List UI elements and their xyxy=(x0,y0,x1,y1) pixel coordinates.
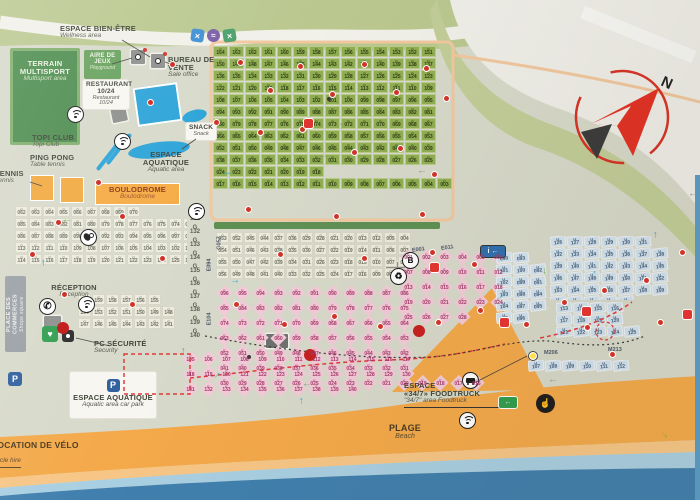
water-point-marker xyxy=(214,120,219,125)
sales-office-building xyxy=(151,54,165,68)
pitch-G147: G147 xyxy=(78,318,91,329)
pitch-G033: G033 xyxy=(286,268,299,279)
pitch-P026: P026 xyxy=(405,154,420,165)
pitch-P155: P155 xyxy=(357,46,372,57)
wellness-label: ESPACE BIEN-ÊTREWellness area xyxy=(60,25,136,40)
pin-icon xyxy=(135,54,141,60)
water-point-marker xyxy=(472,262,477,267)
pitch-P006: P006 xyxy=(389,178,404,189)
wifi-icon xyxy=(114,133,131,150)
pitch-G068: G068 xyxy=(99,206,112,217)
pitch-G121: G121 xyxy=(113,254,126,265)
water-point-marker xyxy=(398,146,403,151)
pitch-P140: P140 xyxy=(373,58,388,69)
pitch-E090: E090 xyxy=(324,286,341,300)
pitch-P144: P144 xyxy=(309,58,324,69)
pitch-M147: M147 xyxy=(566,271,583,284)
pitch-E014: E014 xyxy=(418,280,435,294)
pitch-E015: E015 xyxy=(436,280,453,294)
pitch-G074: G074 xyxy=(169,218,182,229)
hydrant-marker xyxy=(413,325,425,337)
pitch-P003: P003 xyxy=(437,178,452,189)
pitch-P113: P113 xyxy=(357,82,372,93)
pitch-G149: G149 xyxy=(148,306,161,317)
pitch-P105: P105 xyxy=(261,94,276,105)
pitch-P083: P083 xyxy=(389,106,404,117)
pitch-P028: P028 xyxy=(373,154,388,165)
pitch-G077: G077 xyxy=(127,218,140,229)
pitch-P163: P163 xyxy=(229,46,244,57)
pitch-G140: G140 xyxy=(184,329,206,341)
phone-icon: ✆ xyxy=(39,298,56,315)
pitch-G045: G045 xyxy=(244,232,257,243)
pitch-E106: E106 xyxy=(200,352,217,366)
water-point-marker xyxy=(602,288,607,293)
pitch-E068: E068 xyxy=(324,316,341,330)
pitch-G010: G010 xyxy=(370,256,383,267)
pitch-P124: P124 xyxy=(405,70,420,81)
pitch-G009: G009 xyxy=(370,268,383,279)
pitch-P079: P079 xyxy=(229,118,244,129)
pitch-P053: P053 xyxy=(421,130,436,141)
pitch-M107: M107 xyxy=(528,360,545,372)
pitch-P127: P127 xyxy=(357,70,372,81)
pitch-P138: P138 xyxy=(405,58,420,69)
pitch-M144: M144 xyxy=(634,259,651,272)
water-point-marker xyxy=(362,256,367,261)
pitch-G084: G084 xyxy=(29,218,42,229)
pitch-P049: P049 xyxy=(261,142,276,153)
wifi-icon xyxy=(67,106,84,123)
pitch-E091: E091 xyxy=(306,286,323,300)
pitch-E085: E085 xyxy=(216,301,233,315)
topi-club-label: TOPI CLUBTopi Club xyxy=(32,134,74,149)
pitch-P089: P089 xyxy=(293,106,308,117)
pitch-P160: P160 xyxy=(277,46,292,57)
water-point-marker xyxy=(644,278,649,283)
pitch-P094: P094 xyxy=(213,106,228,117)
pitch-E060: E060 xyxy=(270,331,287,345)
pitch-P020: P020 xyxy=(277,166,292,177)
pitch-P114: P114 xyxy=(341,82,356,93)
pitch-M152: M152 xyxy=(651,271,668,284)
pitch-E021: E021 xyxy=(436,295,453,309)
pitch-G041: G041 xyxy=(258,268,271,279)
pitch-G144: G144 xyxy=(120,318,133,329)
water-point-marker xyxy=(478,308,483,313)
water-point-marker xyxy=(30,252,35,257)
pitch-E079: E079 xyxy=(324,301,341,315)
pitch-P116: P116 xyxy=(309,82,324,93)
pitch-G105: G105 xyxy=(127,242,140,253)
pitch-P009: P009 xyxy=(341,178,356,189)
pitch-P037: P037 xyxy=(229,154,244,165)
pitch-M133: M133 xyxy=(566,247,583,260)
pitch-G055: G055 xyxy=(216,256,229,267)
pitch-M140: M140 xyxy=(566,259,583,272)
pitch-G120: G120 xyxy=(99,254,112,265)
pitch-G106: G106 xyxy=(113,242,126,253)
pitch-G066: G066 xyxy=(71,206,84,217)
pitch-G067: G067 xyxy=(85,206,98,217)
pitch-E026: E026 xyxy=(418,310,435,324)
pitch-M151: M151 xyxy=(634,271,651,284)
pitch-M112: M112 xyxy=(612,360,629,372)
pitch-M134: M134 xyxy=(583,247,600,260)
pitch-G114: G114 xyxy=(15,254,28,265)
boulodrome-label: BOULODROME Boulodrome xyxy=(95,186,180,201)
pitch-P120: P120 xyxy=(245,82,260,93)
pitch-G026: G026 xyxy=(314,256,327,267)
pitch-M137: M137 xyxy=(634,247,651,260)
tennis-court xyxy=(60,177,84,203)
pitch-E003: E003 xyxy=(436,250,453,264)
pitch-P034: P034 xyxy=(277,154,292,165)
pitch-G132: G132 xyxy=(184,225,206,237)
pitch-G092: G092 xyxy=(99,230,112,241)
post-marker xyxy=(327,97,331,101)
pitch-P014: P014 xyxy=(261,178,276,189)
pitch-M164: M164 xyxy=(617,295,634,300)
pitch-G017: G017 xyxy=(342,268,355,279)
water-point-marker xyxy=(148,100,153,105)
pitch-P068: P068 xyxy=(405,118,420,129)
pitch-P139: P139 xyxy=(389,58,404,69)
pitch-G085: G085 xyxy=(15,218,28,229)
pitch-P123: P123 xyxy=(421,70,436,81)
pitch-P063: P063 xyxy=(261,130,276,141)
parking-icon: P xyxy=(107,379,120,392)
aquatic-carpark-label: P ESPACE AQUATIQUE Aquatic area car park xyxy=(70,372,156,418)
pitch-P130: P130 xyxy=(309,70,324,81)
pitch-G145: G145 xyxy=(106,318,119,329)
utility-marker xyxy=(304,119,313,128)
pitch-E063: E063 xyxy=(216,331,233,345)
water-point-marker xyxy=(62,292,67,297)
water-point-marker xyxy=(120,214,125,219)
pitch-P085: P085 xyxy=(357,106,372,117)
water-point-marker xyxy=(334,214,339,219)
pitch-E066: E066 xyxy=(360,316,377,330)
pitch-M117: M117 xyxy=(556,313,573,326)
pitch-P051: P051 xyxy=(229,142,244,153)
pitch-P033: P033 xyxy=(293,154,308,165)
pitch-M155: M155 xyxy=(583,283,600,296)
exit-sign-icon: ← xyxy=(498,396,518,409)
pitch-M091: M091 xyxy=(529,275,546,288)
water-point-marker xyxy=(96,180,101,185)
pitch-zone-g-left: G062G063G064G065G066G067G068G069G070G085… xyxy=(15,206,187,286)
pitch-G040: G040 xyxy=(272,268,285,279)
pitch-E089: E089 xyxy=(342,286,359,300)
pitch-G095: G095 xyxy=(141,230,154,241)
sport-badge-icon: × xyxy=(222,28,237,43)
pitch-G093: G093 xyxy=(113,230,126,241)
pitch-G134: G134 xyxy=(184,251,206,263)
pitch-P060: P060 xyxy=(309,130,324,141)
water-point-marker xyxy=(352,150,357,155)
pitch-P081: P081 xyxy=(421,106,436,117)
pitch-P126: P126 xyxy=(373,70,388,81)
pitch-E072: E072 xyxy=(252,316,269,330)
pitch-P057: P057 xyxy=(357,130,372,141)
pitch-P088: P088 xyxy=(309,106,324,117)
pitch-E074: E074 xyxy=(216,316,233,330)
pitch-G102: G102 xyxy=(169,242,182,253)
pitch-M159: M159 xyxy=(651,283,668,296)
direction-arrow-icon: → xyxy=(178,346,188,356)
water-point-marker xyxy=(130,302,135,307)
pitch-P131: P131 xyxy=(293,70,308,81)
playground-building xyxy=(131,50,145,64)
pitch-P008: P008 xyxy=(357,178,372,189)
tennis-label: TENNISTennis xyxy=(0,170,24,185)
pitch-P039: P039 xyxy=(421,142,436,153)
pitch-E093: E093 xyxy=(270,286,287,300)
pitch-G042: G042 xyxy=(258,256,271,267)
pitch-M132: M132 xyxy=(550,247,567,260)
pitch-P121: P121 xyxy=(229,82,244,93)
pitch-G064: G064 xyxy=(43,206,56,217)
pitch-G152: G152 xyxy=(106,306,119,317)
pitch-E057: E057 xyxy=(324,331,341,345)
pitch-M135: M135 xyxy=(600,247,617,260)
pitch-G117: G117 xyxy=(57,254,70,265)
spa-badge-icon: ≈ xyxy=(207,29,220,42)
pitch-P110: P110 xyxy=(405,82,420,93)
pool-main xyxy=(133,82,183,127)
pitch-G056: G056 xyxy=(216,268,229,279)
pitch-P070: P070 xyxy=(373,118,388,129)
sales-office-label: BUREAU DE VENTESale office xyxy=(168,56,222,79)
utility-marker xyxy=(500,318,509,327)
pitch-G029: G029 xyxy=(300,232,313,243)
pitch-P148: P148 xyxy=(245,58,260,69)
pitch-G032: G032 xyxy=(300,268,313,279)
pitch-M150: M150 xyxy=(617,271,634,284)
pitch-G133: G133 xyxy=(184,238,206,250)
pitch-P112: P112 xyxy=(373,82,388,93)
pitch-E067: E067 xyxy=(342,316,359,330)
pitch-M158: M158 xyxy=(634,283,651,296)
pitch-P099: P099 xyxy=(357,94,372,105)
pitch-E077: E077 xyxy=(360,301,377,315)
pitch-G013: G013 xyxy=(356,232,369,243)
pitch-G012: G012 xyxy=(370,232,383,243)
pitch-E056: E056 xyxy=(342,331,359,345)
pitch-P062: P062 xyxy=(277,130,292,141)
area-label-M213: M213 xyxy=(608,347,622,353)
water-point-marker xyxy=(258,130,263,135)
pitch-P122: P122 xyxy=(213,82,228,93)
pitch-zone-g-column: G131G132G133G134G135G136G137G138G139G140 xyxy=(184,212,210,352)
pitch-M153: M153 xyxy=(550,283,567,296)
pitch-P157: P157 xyxy=(325,46,340,57)
pitch-G022: G022 xyxy=(328,244,341,255)
pitch-P154: P154 xyxy=(373,46,388,57)
water-point-marker xyxy=(298,64,303,69)
pitch-P086: P086 xyxy=(341,106,356,117)
pitch-G146: G146 xyxy=(92,318,105,329)
pitch-E061: E061 xyxy=(252,331,269,345)
pitch-G075: G075 xyxy=(155,218,168,229)
pitch-E095: E095 xyxy=(234,286,251,300)
water-point-marker xyxy=(432,172,437,177)
wifi-icon xyxy=(459,412,476,429)
pitch-E094: E094 xyxy=(252,286,269,300)
pitch-G094: G094 xyxy=(127,230,140,241)
pitch-G150: G150 xyxy=(134,306,147,317)
pitch-G118: G118 xyxy=(71,254,84,265)
pitch-G027: G027 xyxy=(314,244,327,255)
water-point-marker xyxy=(424,66,429,71)
pitch-P015: P015 xyxy=(245,178,260,189)
pitch-P021: P021 xyxy=(261,166,276,177)
pitch-P161: P161 xyxy=(261,46,276,57)
pitch-G048: G048 xyxy=(244,268,257,279)
pitch-M125: M125 xyxy=(623,325,640,338)
pitch-M154: M154 xyxy=(566,283,583,296)
pitch-G014: G014 xyxy=(356,244,369,255)
pitch-G136: G136 xyxy=(184,277,206,289)
pitch-G088: G088 xyxy=(43,230,56,241)
pitch-G104: G104 xyxy=(141,242,154,253)
pitch-E096: E096 xyxy=(216,286,233,300)
pitch-P087: P087 xyxy=(325,106,340,117)
beach-label: PLAGE Beach xyxy=(360,424,450,441)
pitch-P018: P018 xyxy=(309,166,324,177)
pitch-M139: M139 xyxy=(550,259,567,272)
pitch-M098: M098 xyxy=(512,287,529,300)
water-point-marker xyxy=(394,90,399,95)
pitch-P151: P151 xyxy=(421,46,436,57)
pitch-E062: E062 xyxy=(234,331,251,345)
pitch-G139: G139 xyxy=(184,316,206,328)
pitch-E023: E023 xyxy=(472,295,489,309)
pitch-M094: M094 xyxy=(529,287,546,300)
pin-icon xyxy=(155,58,161,64)
pitch-P027: P027 xyxy=(389,154,404,165)
pitch-G142: G142 xyxy=(148,318,161,329)
pitch-G083: G083 xyxy=(43,218,56,229)
pitch-P152: P152 xyxy=(405,46,420,57)
pitch-P050: P050 xyxy=(245,142,260,153)
pitch-G110: G110 xyxy=(57,242,70,253)
pitch-G050: G050 xyxy=(230,256,243,267)
pitch-M108: M108 xyxy=(544,360,561,372)
pitch-P096: P096 xyxy=(405,94,420,105)
pitch-E132: E132 xyxy=(200,382,217,396)
pitch-P104: P104 xyxy=(277,94,292,105)
pitch-G123: G123 xyxy=(141,254,154,265)
pitch-P036: P036 xyxy=(245,154,260,165)
pitch-P095: P095 xyxy=(421,94,436,105)
pitch-P084: P084 xyxy=(373,106,388,117)
pitch-M119: M119 xyxy=(589,313,606,326)
utility-marker xyxy=(683,310,692,319)
area-label-M206: M206 xyxy=(544,350,558,356)
direction-arrow-icon: → xyxy=(38,258,48,268)
area-label-E104: E104 xyxy=(206,313,212,326)
pitch-P013: P013 xyxy=(277,178,292,189)
pitch-E078: E078 xyxy=(342,301,359,315)
ping-pong-label: PING PONGTable tennis xyxy=(30,154,74,169)
campground-map: PLACE DES COMMERCES Shops square P164P16… xyxy=(0,0,700,500)
pitch-zone-m-b: M126M127M128M129M130M131M132M133M134M135… xyxy=(550,236,696,300)
water-point-marker xyxy=(444,96,449,101)
pitch-E080: E080 xyxy=(306,301,323,315)
pitch-G005: G005 xyxy=(384,232,397,243)
reception-label: RÉCEPTIONReception xyxy=(38,284,110,299)
pitch-P142: P142 xyxy=(341,58,356,69)
pitch-P098: P098 xyxy=(373,94,388,105)
pitch-P019: P019 xyxy=(293,166,308,177)
direction-arrow-icon: → xyxy=(548,376,558,386)
pitch-G143: G143 xyxy=(134,318,147,329)
pitch-P107: P107 xyxy=(229,94,244,105)
pitch-M124: M124 xyxy=(606,325,623,338)
pitch-E017: E017 xyxy=(472,280,489,294)
pitch-G141: G141 xyxy=(162,318,175,329)
anchor-marker xyxy=(529,352,537,360)
pitch-P076: P076 xyxy=(277,118,292,129)
pitch-G025: G025 xyxy=(314,268,327,279)
pitch-P025: P025 xyxy=(421,154,436,165)
pitch-E059: E059 xyxy=(288,331,305,345)
pitch-P100: P100 xyxy=(341,94,356,105)
parking-icon: P xyxy=(8,372,22,386)
water-point-marker xyxy=(238,60,243,65)
pitch-G138: G138 xyxy=(184,303,206,315)
pitch-M145: M145 xyxy=(651,259,668,272)
pitch-E088: E088 xyxy=(360,286,377,300)
water-point-marker xyxy=(585,325,590,330)
pitch-P092: P092 xyxy=(245,106,260,117)
pitch-E053: E053 xyxy=(396,331,413,345)
pitch-E004: E004 xyxy=(454,250,471,264)
pitch-P077: P077 xyxy=(261,118,276,129)
pitch-E087: E087 xyxy=(378,286,395,300)
pitch-M095: M095 xyxy=(529,299,546,312)
pitch-E069: E069 xyxy=(306,316,323,330)
pitch-P017: P017 xyxy=(213,178,228,189)
pitch-E011: E011 xyxy=(472,265,489,279)
pitch-P071: P071 xyxy=(357,118,372,129)
pitch-M121: M121 xyxy=(556,325,573,338)
pitch-M142: M142 xyxy=(600,259,617,272)
pitch-E016: E016 xyxy=(454,280,471,294)
pitch-G156: G156 xyxy=(134,294,147,305)
pitch-G087: G087 xyxy=(29,230,42,241)
pitch-G125: G125 xyxy=(169,254,182,265)
pitch-P065: P065 xyxy=(229,130,244,141)
security-label: PC SÉCURITÉSecurity xyxy=(94,340,147,355)
direction-arrow-icon: → xyxy=(650,230,660,240)
pitch-P059: P059 xyxy=(325,130,340,141)
shops-label: PLACE DES COMMERCES xyxy=(6,294,19,334)
pitch-G078: G078 xyxy=(113,218,126,229)
pitch-P004: P004 xyxy=(421,178,436,189)
pitch-P029: P029 xyxy=(357,154,372,165)
pitch-P143: P143 xyxy=(325,58,340,69)
pitch-G079: G079 xyxy=(99,218,112,229)
pitch-E131: E131 xyxy=(182,382,199,396)
pitch-P128: P128 xyxy=(341,70,356,81)
pitch-P093: P093 xyxy=(229,106,244,117)
pitch-M123: M123 xyxy=(589,325,606,338)
pitch-G062: G062 xyxy=(15,206,28,217)
direction-arrow-icon: → xyxy=(336,121,346,131)
